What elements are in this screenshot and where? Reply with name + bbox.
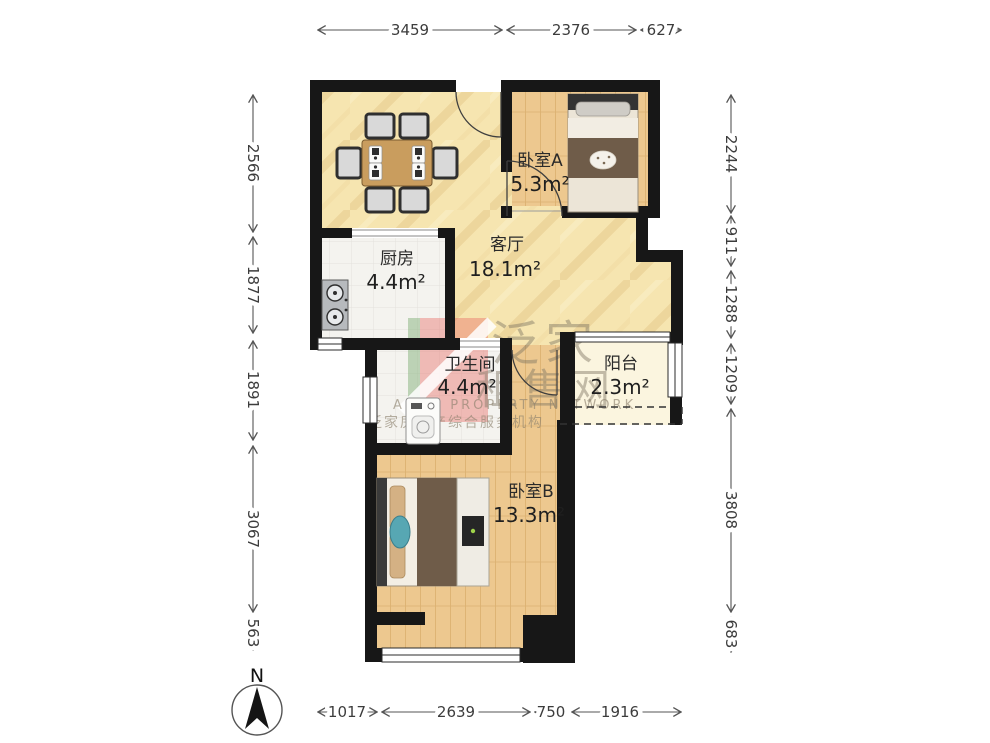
floor-plan-drawing: 泛家 租售网 ANJIA PROPERTY NETWORK 泛家房地产综合服务机… <box>0 0 990 743</box>
dimension-top-2: 2376 <box>507 21 636 39</box>
washing-machine <box>406 398 440 444</box>
balcony-label: 阳台 <box>604 354 638 374</box>
svg-text:750: 750 <box>537 703 566 721</box>
bedroom-a-label: 卧室A <box>517 151 563 171</box>
svg-text:1916: 1916 <box>601 703 639 721</box>
svg-text:2376: 2376 <box>552 21 590 39</box>
north-label: N <box>250 665 264 687</box>
dimension-left-5: 563 <box>244 617 262 650</box>
dimension-top-3: 627 <box>641 21 681 39</box>
bathroom-label: 卫生间 <box>445 355 496 375</box>
living-room-label: 客厅 <box>490 235 524 255</box>
dimension-bottom-4: 1916 <box>572 703 681 721</box>
dimension-right-5: 3808 <box>722 409 740 612</box>
dimension-left-2: 1877 <box>244 237 262 333</box>
balcony-right-window <box>668 343 682 397</box>
svg-text:563: 563 <box>244 619 262 648</box>
dimension-right-6: 683 <box>722 617 740 652</box>
dimension-bottom-2: 2639 <box>382 703 530 721</box>
dimension-right-3: 1288 <box>722 271 740 338</box>
balcony-area: 2.3m² <box>590 375 649 399</box>
dimension-top-1: 3459 <box>318 21 502 39</box>
svg-text:2244: 2244 <box>722 135 740 173</box>
bathroom-opening <box>460 338 500 350</box>
svg-text:1209: 1209 <box>722 355 740 393</box>
dimension-left-3: 1891 <box>244 341 262 440</box>
bedroom-b-bed <box>377 478 489 586</box>
dimension-left-4: 3067 <box>244 446 262 612</box>
kitchen-window <box>318 338 342 350</box>
dimension-left-1: 2566 <box>244 95 262 232</box>
svg-text:1891: 1891 <box>244 371 262 409</box>
dimension-bottom-3: 750 <box>535 703 567 721</box>
north-compass: N <box>232 665 282 735</box>
bedroom-b-window <box>382 648 520 662</box>
bedroom-a-area: 5.3m² <box>510 172 569 196</box>
svg-text:2566: 2566 <box>244 144 262 182</box>
bathroom-window <box>363 377 377 423</box>
kitchen-label: 厨房 <box>380 249 414 269</box>
svg-text:1017: 1017 <box>328 703 366 721</box>
kitchen-area: 4.4m² <box>366 270 425 294</box>
svg-text:3459: 3459 <box>391 21 429 39</box>
floor-plan-page: 泛家 租售网 ANJIA PROPERTY NETWORK 泛家房地产综合服务机… <box>0 0 990 743</box>
svg-text:627: 627 <box>647 21 676 39</box>
bedroom-a-bed <box>568 94 638 212</box>
dimension-bottom-1: 1017 <box>318 703 377 721</box>
bedroom-b-label: 卧室B <box>508 482 554 502</box>
svg-text:3808: 3808 <box>722 491 740 529</box>
svg-text:911: 911 <box>722 227 740 256</box>
balcony-top-window <box>575 332 670 342</box>
watermark-caption: 泛家房地产综合服务机构 <box>368 414 544 431</box>
dimension-right-1: 2244 <box>722 95 740 213</box>
kitchen-stove <box>322 280 348 330</box>
bathroom-area: 4.4m² <box>437 375 496 399</box>
dimension-right-2: 911 <box>722 216 740 266</box>
living-room-area: 18.1m² <box>469 257 541 281</box>
kitchen-opening <box>352 228 438 238</box>
svg-text:2639: 2639 <box>437 703 475 721</box>
svg-text:1288: 1288 <box>722 285 740 323</box>
svg-text:683: 683 <box>722 620 740 649</box>
svg-text:3067: 3067 <box>244 510 262 548</box>
dimension-right-4: 1209 <box>722 344 740 404</box>
svg-text:1877: 1877 <box>244 266 262 304</box>
bedroom-b-area: 13.3m² <box>493 503 565 527</box>
